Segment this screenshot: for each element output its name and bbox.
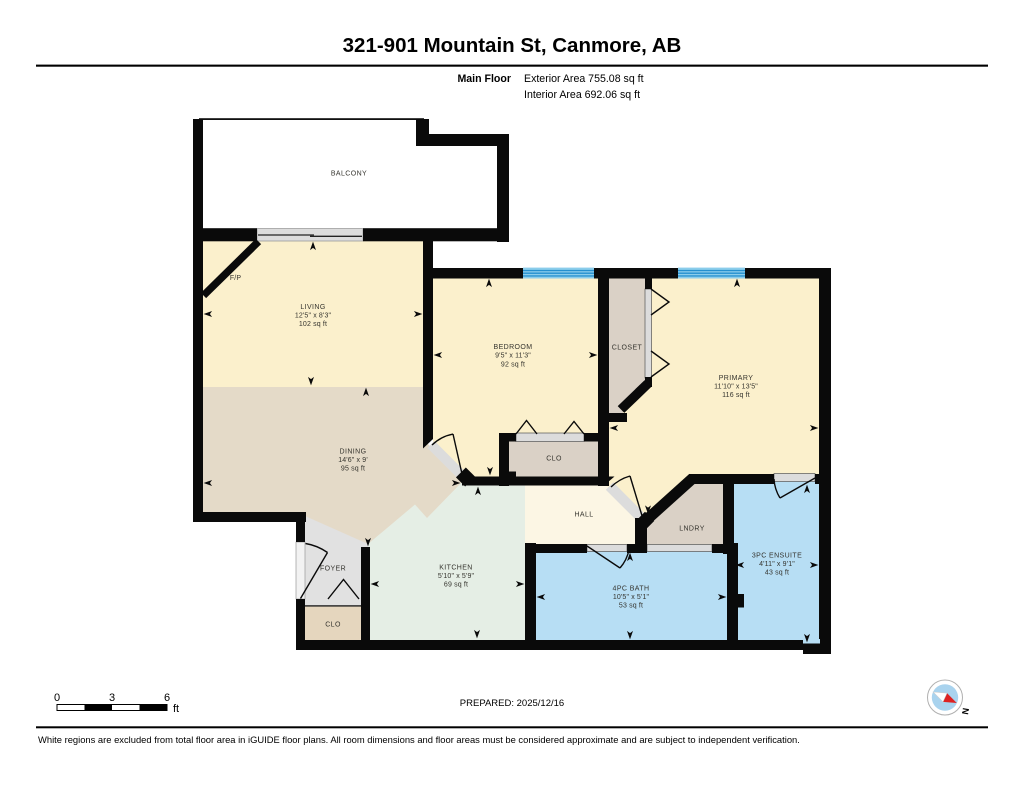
svg-text:ft: ft [173, 703, 179, 715]
svg-text:9'5" x 11'3": 9'5" x 11'3" [495, 353, 531, 360]
svg-text:BALCONY: BALCONY [331, 171, 367, 178]
svg-text:3: 3 [109, 692, 115, 704]
svg-text:4'11" x 9'1": 4'11" x 9'1" [759, 561, 795, 568]
svg-text:11'10" x 13'5": 11'10" x 13'5" [714, 383, 758, 390]
svg-text:White regions are excluded fro: White regions are excluded from total fl… [38, 734, 800, 745]
svg-text:69 sq ft: 69 sq ft [444, 582, 468, 589]
svg-text:F/P: F/P [230, 275, 242, 282]
svg-text:10'5" x 5'1": 10'5" x 5'1" [613, 594, 650, 601]
svg-text:0: 0 [54, 692, 60, 704]
svg-text:14'6" x 9': 14'6" x 9' [338, 457, 368, 464]
svg-text:53 sq ft: 53 sq ft [619, 603, 643, 610]
svg-text:DINING: DINING [340, 448, 367, 455]
svg-text:92 sq ft: 92 sq ft [501, 361, 525, 368]
svg-text:KITCHEN: KITCHEN [439, 564, 473, 571]
svg-text:PRIMARY: PRIMARY [719, 375, 754, 382]
svg-text:3PC ENSUITE: 3PC ENSUITE [752, 552, 802, 559]
svg-text:FOYER: FOYER [320, 566, 346, 573]
svg-text:Main Floor: Main Floor [457, 73, 511, 85]
svg-text:BEDROOM: BEDROOM [494, 344, 533, 351]
svg-text:116 sq ft: 116 sq ft [722, 392, 750, 399]
svg-text:321-901 Mountain St, Canmore,: 321-901 Mountain St, Canmore, AB [343, 34, 682, 57]
svg-text:CLO: CLO [546, 456, 562, 463]
svg-text:CLO: CLO [325, 622, 341, 629]
svg-text:Exterior Area 755.08 sq ft: Exterior Area 755.08 sq ft [524, 73, 644, 85]
svg-text:LIVING: LIVING [300, 304, 325, 311]
svg-text:12'5" x 8'3": 12'5" x 8'3" [295, 312, 332, 319]
svg-text:Interior Area 692.06 sq ft: Interior Area 692.06 sq ft [524, 89, 640, 101]
svg-text:HALL: HALL [574, 512, 593, 519]
svg-text:43 sq ft: 43 sq ft [765, 570, 789, 577]
svg-text:PREPARED: 2025/12/16: PREPARED: 2025/12/16 [460, 698, 564, 709]
svg-text:5'10" x 5'9": 5'10" x 5'9" [438, 573, 475, 580]
svg-text:102 sq ft: 102 sq ft [299, 321, 327, 328]
svg-text:6: 6 [164, 692, 170, 704]
svg-text:LNDRY: LNDRY [679, 526, 705, 533]
svg-text:95 sq ft: 95 sq ft [341, 466, 365, 473]
svg-text:CLOSET: CLOSET [612, 345, 643, 352]
svg-text:4PC BATH: 4PC BATH [613, 585, 650, 592]
